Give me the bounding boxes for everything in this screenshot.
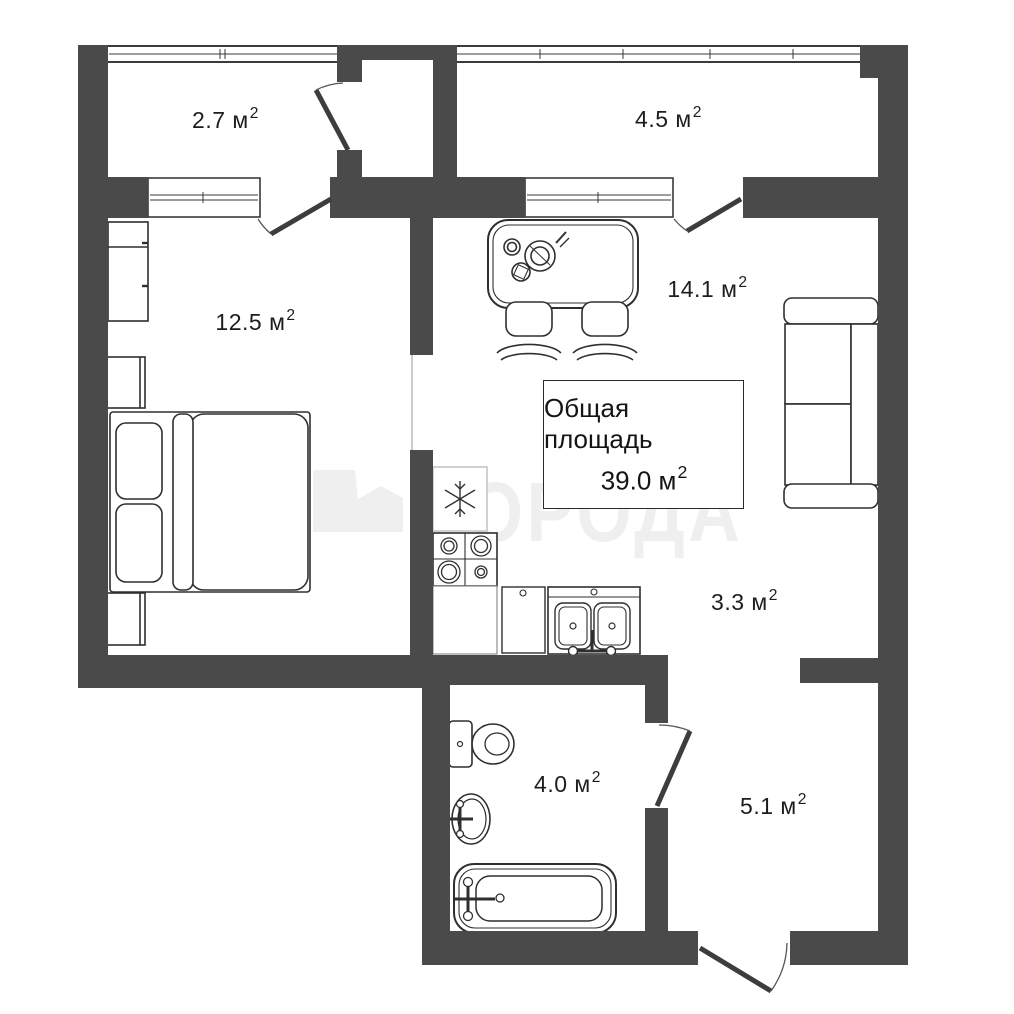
kitchen-window (525, 178, 673, 217)
bathtub (454, 864, 616, 933)
bedroom-window (148, 178, 260, 217)
entrance-door (700, 943, 787, 991)
kitchen-cabinet (502, 587, 545, 653)
floor-plan-svg: ГОРОДА (0, 0, 1014, 1014)
stove (433, 533, 497, 586)
total-area-title: Общая площадь (544, 393, 743, 455)
kitchen-counter (433, 586, 497, 654)
nightstand-bottom (107, 593, 145, 645)
chair (573, 302, 637, 360)
pillow (116, 423, 162, 499)
watermark-logo (313, 470, 403, 532)
pillow (116, 504, 162, 582)
total-area-box: Общая площадь 39.0 м2 (543, 380, 744, 509)
bathroom-door (657, 725, 690, 806)
living-balcony-door (674, 199, 741, 231)
nightstand-top (107, 357, 145, 408)
room-label-bathroom: 4.0 м2 (534, 770, 600, 798)
bed (110, 412, 310, 592)
sofa (784, 298, 878, 508)
dining-table (488, 220, 638, 308)
toilet (449, 721, 514, 767)
bedroom-balcony-door (258, 199, 331, 234)
total-area-value: 39.0 м2 (601, 464, 687, 497)
room-label-balcony-top-right: 4.5 м2 (635, 105, 701, 133)
room-label-living-kitchen: 14.1 м2 (667, 275, 746, 303)
room-label-kitchen-passage: 3.3 м2 (711, 588, 777, 616)
balcony-right-window (455, 46, 862, 62)
wardrobe (108, 222, 148, 321)
fridge (433, 467, 487, 531)
balcony-divider-door (316, 83, 348, 150)
balcony-left-window (107, 46, 340, 62)
floor-plan: ГОРОДА (0, 0, 1014, 1014)
room-label-balcony-top-left: 2.7 м2 (192, 106, 258, 134)
washbasin (447, 794, 490, 844)
kitchen-sink (548, 587, 640, 656)
room-label-bedroom: 12.5 м2 (215, 308, 294, 336)
chair (497, 302, 561, 360)
room-label-hallway: 5.1 м2 (740, 792, 806, 820)
